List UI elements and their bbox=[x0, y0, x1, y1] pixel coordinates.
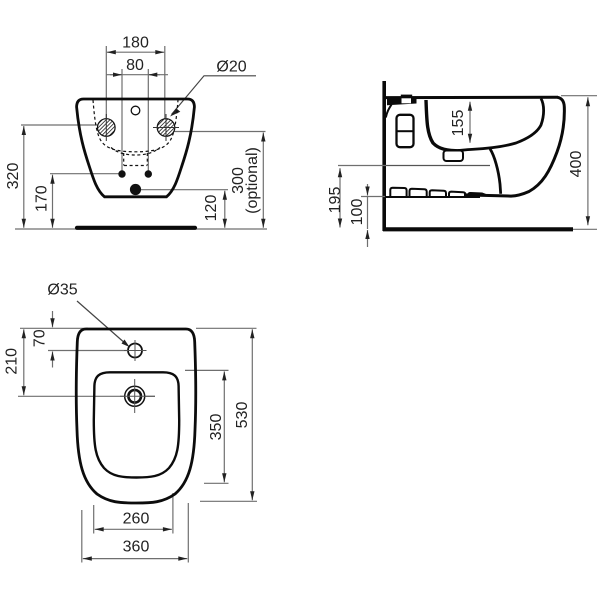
svg-text:(optional): (optional) bbox=[244, 147, 261, 214]
svg-text:210: 210 bbox=[4, 348, 21, 375]
svg-text:260: 260 bbox=[123, 511, 150, 528]
svg-text:180: 180 bbox=[122, 35, 149, 52]
svg-text:70: 70 bbox=[32, 329, 49, 347]
svg-text:320: 320 bbox=[5, 163, 22, 190]
svg-text:Ø35: Ø35 bbox=[47, 282, 77, 299]
svg-text:Ø20: Ø20 bbox=[216, 59, 246, 76]
svg-text:360: 360 bbox=[123, 539, 150, 556]
svg-text:400: 400 bbox=[568, 151, 585, 178]
svg-text:195: 195 bbox=[327, 187, 344, 214]
svg-text:170: 170 bbox=[34, 185, 51, 212]
svg-text:155: 155 bbox=[450, 110, 467, 137]
svg-text:100: 100 bbox=[349, 199, 366, 226]
svg-text:80: 80 bbox=[126, 57, 144, 74]
svg-text:120: 120 bbox=[203, 195, 220, 222]
svg-text:350: 350 bbox=[208, 414, 225, 441]
svg-text:530: 530 bbox=[234, 402, 251, 429]
